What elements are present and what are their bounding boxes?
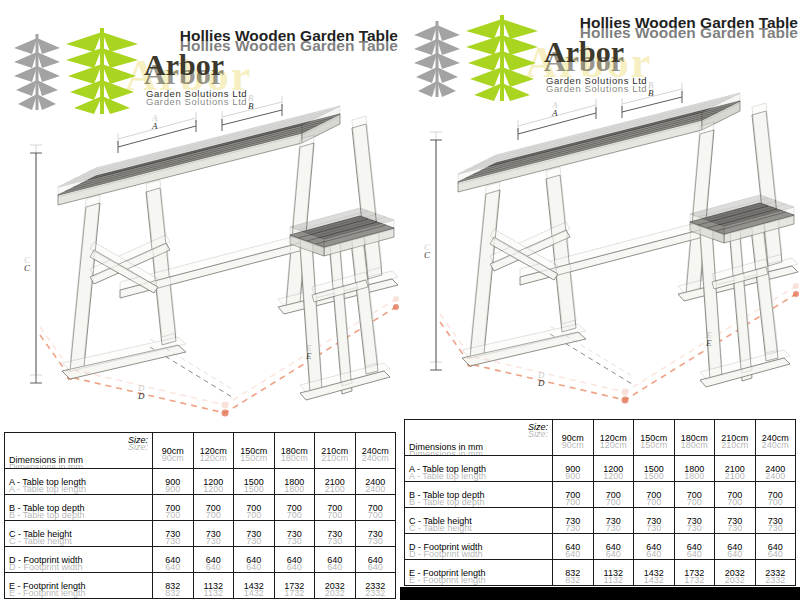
row-label: B - Table top depth [405,482,553,508]
dim-value: 640 [315,547,356,573]
dim-value: 1432 [234,573,275,599]
dim-value: 730 [315,521,356,547]
dim-value: 730 [153,521,194,547]
dim-value: 1132 [193,573,234,599]
page: Arbor [400,0,800,587]
dim-value: 1200 [593,456,634,482]
dim-value: 2400 [355,469,396,495]
dim-value: 700 [715,482,756,508]
column-header: 240cm [355,433,396,469]
dim-value: 700 [553,482,594,508]
dim-value: 700 [274,495,315,521]
dim-value: 832 [553,560,594,586]
table-row: D - Footprint width 640 640 640 640 640 … [5,547,396,573]
table-row: B - Table top depth 700 700 700 700 700 … [405,482,796,508]
dim-value: 832 [153,573,194,599]
dim-value: 640 [234,547,275,573]
dim-value: 640 [153,547,194,573]
dim-value: 2100 [315,469,356,495]
dimensions-table: Size: Dimensions in mm 90cm 120cm 150cm … [404,419,796,586]
dim-value: 730 [553,508,594,534]
row-label: D - Footprint width [5,547,153,573]
technical-drawing: A B C D E [0,95,400,435]
dim-value: 1432 [634,560,675,586]
table-row: A - Table top length 900 1200 1500 1800 … [405,456,796,482]
dim-value: 2032 [315,573,356,599]
dim-value: 640 [634,534,675,560]
dim-value: 1732 [674,560,715,586]
dim-value: 700 [234,495,275,521]
dim-value: 2100 [715,456,756,482]
units-label: Dimensions in mm [9,455,83,465]
dim-value: 730 [274,521,315,547]
table-row: B - Table top depth 700 700 700 700 700 … [5,495,396,521]
dim-value: 1200 [193,469,234,495]
dim-value: 1732 [274,573,315,599]
dim-value: 640 [274,547,315,573]
dim-value: 700 [153,495,194,521]
dim-value: 640 [553,534,594,560]
row-label: E - Footprint length [5,573,153,599]
dim-value: 900 [153,469,194,495]
column-header: 150cm [234,433,275,469]
technical-drawing: A B C D E [400,82,800,422]
dim-value: 700 [355,495,396,521]
column-header: 210cm [715,420,756,456]
dim-value: 730 [593,508,634,534]
dim-value: 700 [674,482,715,508]
column-header: 90cm [553,420,594,456]
spread: Arbor [0,0,800,600]
row-label: D - Footprint width [405,534,553,560]
row-label: C - Table height [5,521,153,547]
size-label: Size: [528,422,548,432]
row-label: E - Footprint length [405,560,553,586]
page-title: Hollies Wooden Garden Table [180,27,398,45]
dim-value: 900 [553,456,594,482]
dim-value: 700 [193,495,234,521]
page: Arbor [0,0,400,600]
dim-value: 730 [355,521,396,547]
dim-value: 1800 [674,456,715,482]
brand-name: Arbor [544,35,624,69]
table-row: E - Footprint length 832 1132 1432 1732 … [405,560,796,586]
dim-value: 2032 [715,560,756,586]
dim-value: 700 [634,482,675,508]
column-header: 180cm [674,420,715,456]
row-label: C - Table height [405,508,553,534]
dim-value: 640 [715,534,756,560]
table-corner-cell: Size: Dimensions in mm [5,433,153,469]
dim-value: 640 [355,547,396,573]
dim-value: 700 [315,495,356,521]
dim-value: 1800 [274,469,315,495]
dim-value: 2332 [755,560,796,586]
size-label: Size: [128,435,148,445]
table-header-row: Size: Dimensions in mm 90cm 120cm 150cm … [5,433,396,469]
brand-name: Arbor [144,48,224,82]
column-header: 240cm [755,420,796,456]
dim-value: 730 [234,521,275,547]
dim-value: 730 [193,521,234,547]
dim-value: 640 [593,534,634,560]
row-label: A - Table top length [405,456,553,482]
dim-value: 1132 [593,560,634,586]
table-row: E - Footprint length 832 1132 1432 1732 … [5,573,396,599]
table-header-row: Size: Dimensions in mm 90cm 120cm 150cm … [405,420,796,456]
dim-value: 1500 [634,456,675,482]
dim-value: 2400 [755,456,796,482]
dimensions-table: Size: Dimensions in mm 90cm 120cm 150cm … [4,432,396,599]
dim-value: 700 [755,482,796,508]
dim-value: 730 [674,508,715,534]
dim-value: 2332 [355,573,396,599]
column-header: 150cm [634,420,675,456]
dim-value: 640 [755,534,796,560]
column-header: 120cm [193,433,234,469]
table-corner-cell: Size: Dimensions in mm [405,420,553,456]
column-header: 180cm [274,433,315,469]
dim-value: 730 [715,508,756,534]
row-label: B - Table top depth [5,495,153,521]
dim-value: 640 [193,547,234,573]
column-header: 210cm [315,433,356,469]
column-header: 120cm [593,420,634,456]
page-title: Hollies Wooden Garden Table [580,14,798,32]
column-header: 90cm [153,433,194,469]
dim-value: 730 [634,508,675,534]
table-row: D - Footprint width 640 640 640 640 640 … [405,534,796,560]
dim-value: 700 [593,482,634,508]
dim-value: 730 [755,508,796,534]
table-row: C - Table height 730 730 730 730 730 730 [5,521,396,547]
units-label: Dimensions in mm [409,442,483,452]
row-label: A - Table top length [5,469,153,495]
dim-value: 1500 [234,469,275,495]
table-row: A - Table top length 900 1200 1500 1800 … [5,469,396,495]
table-row: C - Table height 730 730 730 730 730 730 [405,508,796,534]
dim-value: 640 [674,534,715,560]
